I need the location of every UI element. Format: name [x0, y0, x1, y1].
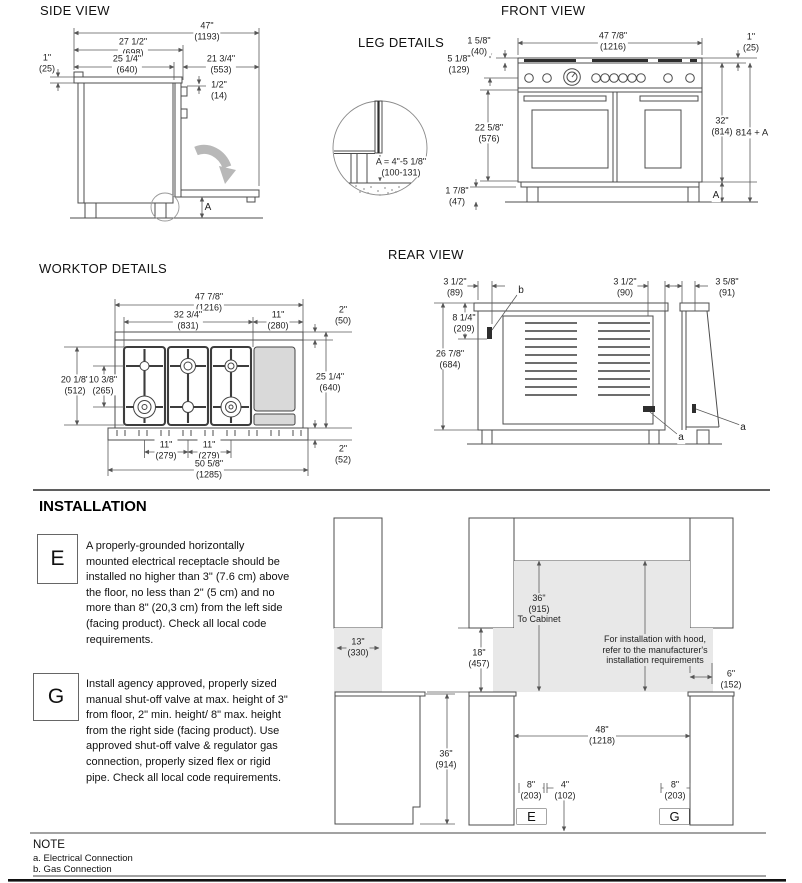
installation-e-letter: E: [50, 547, 64, 571]
dim-install-clearance: 18" (457): [467, 647, 490, 668]
electrical-connection-mark: [487, 327, 492, 339]
note-item-b: b. Gas Connection: [33, 864, 112, 875]
dim-rear-gas-offset: 3 1/2" (90): [612, 276, 637, 297]
side-view-title: SIDE VIEW: [40, 3, 110, 18]
dim-worktop-burner-area: 32 3/4" (831): [173, 309, 203, 330]
dim-side-total-width: 47" (1193): [193, 20, 220, 41]
dim-rear-height: 26 7/8" (684): [435, 348, 465, 369]
front-view-title: FRONT VIEW: [501, 3, 585, 18]
dim-front-door-height: 22 5/8" (576): [474, 122, 504, 143]
dim-worktop-burner-row-spacing: 10 3/8" (265): [88, 374, 118, 395]
installation-g-letter: G: [48, 685, 64, 709]
dim-worktop-grate-depth: 20 1/8" (512): [60, 374, 90, 395]
label-rear-a2: a: [739, 422, 747, 434]
dim-front-width: 47 7/8" (1216): [598, 30, 628, 51]
base-vent-ticks: [117, 430, 301, 436]
label-rear-b: b: [517, 285, 525, 297]
leg-details-drawing: [333, 101, 427, 196]
installation-side-diagram: [334, 518, 492, 824]
install-hood-note: For installation with hood, refer to the…: [601, 634, 708, 666]
dim-leg-formula: A = 4"-5 1/8" (100-131): [375, 156, 427, 177]
dim-worktop-burner-spacing-1: 11" (279): [154, 439, 177, 460]
installation-e-box: E: [37, 534, 78, 584]
vent-slots: [525, 323, 650, 395]
dim-side-door-depth: 21 3/4" (553): [206, 53, 236, 74]
note-item-a: a. Electrical Connection: [33, 853, 133, 864]
dim-front-leg-letter: A: [712, 190, 721, 202]
install-g-marker: G: [660, 809, 689, 824]
dim-worktop-depth: 25 1/4" (640): [315, 371, 345, 392]
installation-e-text: A properly-grounded horizontally mounted…: [86, 539, 289, 648]
dim-install-to-cabinet: 36" (915) To Cabinet: [516, 593, 561, 625]
leg-details-title: LEG DETAILS: [358, 35, 444, 50]
floor-stipple: [355, 185, 400, 196]
installation-title: INSTALLATION: [39, 498, 147, 515]
dim-side-gap: 1/2" (14): [210, 79, 228, 100]
dim-side-worktop-thickness: 1" (25): [38, 52, 56, 73]
label-rear-a1: a: [677, 432, 685, 444]
install-g-marker-letter: G: [669, 809, 679, 824]
dim-front-total-height: 814 + A: [735, 127, 770, 138]
dim-worktop-base-edge: 2" (52): [334, 443, 352, 464]
dim-install-opening-width: 48" (1218): [588, 724, 616, 745]
dim-rear-side-offset: 3 5/8" (91): [714, 276, 739, 297]
dim-install-recess-width: 13" (330): [346, 636, 369, 657]
installation-front-diagram: [469, 518, 734, 831]
dim-worktop-front-edge: 2" (50): [334, 304, 352, 325]
dim-front-body-height: 32" (814): [710, 115, 733, 136]
spec-sheet-page: SIDE VIEW FRONT VIEW LEG DETAILS WORKTOP…: [0, 0, 802, 883]
installation-g-box: G: [33, 673, 79, 721]
dim-install-side-clearance: 6" (152): [719, 668, 742, 689]
dim-front-leg-height: 1 7/8" (47): [444, 185, 469, 206]
dim-worktop-total-width: 50 5/8" (1285): [194, 458, 224, 479]
dim-install-elec-offset: 8" (203): [519, 779, 542, 800]
door-open-arrow-icon: [196, 149, 227, 167]
rear-view-title: REAR VIEW: [388, 247, 464, 262]
dim-rear-elec-height: 8 1/4" (209): [451, 312, 476, 333]
worktop-details-title: WORKTOP DETAILS: [39, 261, 167, 276]
dim-rear-elec-offset: 3 1/2" (89): [442, 276, 467, 297]
installation-g-text: Install agency approved, properly sized …: [86, 677, 288, 786]
dim-front-panel-height: 5 1/8" (129): [446, 53, 471, 74]
dim-side-leg-letter: A: [204, 202, 213, 214]
griddle-plate: [254, 347, 295, 411]
dim-side-depth-body: 25 1/4" (640): [112, 53, 142, 74]
install-e-marker-letter: E: [527, 809, 536, 824]
dim-worktop-griddle-width: 11" (280): [266, 309, 289, 330]
rear-view-drawing: [434, 281, 740, 444]
gas-connection-mark: [643, 406, 655, 412]
dim-install-gas-offset: 8" (203): [663, 779, 686, 800]
install-e-marker: E: [517, 809, 546, 824]
dim-install-gas-center: 4" (102): [553, 779, 576, 800]
dim-front-grate-offset: 1" (25): [742, 31, 760, 52]
dim-install-counter-height: 36" (914): [434, 748, 457, 769]
note-title: NOTE: [33, 839, 65, 851]
